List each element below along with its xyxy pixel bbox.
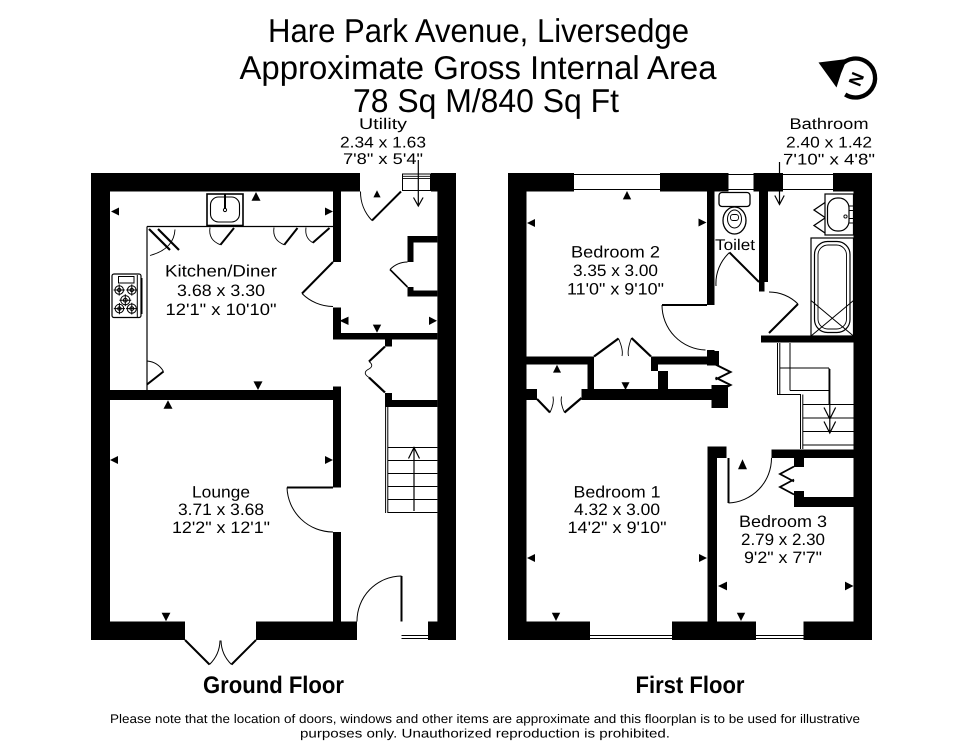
svg-text:Kitchen/Diner: Kitchen/Diner (165, 263, 278, 281)
svg-text:Ground Floor: Ground Floor (203, 672, 344, 699)
svg-text:3.68 x 3.30: 3.68 x 3.30 (177, 282, 265, 300)
svg-text:7'8" x 5'4": 7'8" x 5'4" (343, 151, 423, 168)
svg-text:2.40 x 1.42: 2.40 x 1.42 (786, 135, 872, 152)
svg-text:Bathroom: Bathroom (790, 116, 869, 133)
svg-text:7'10" x 4'8": 7'10" x 4'8" (783, 152, 875, 169)
svg-text:2.34 x 1.63: 2.34 x 1.63 (340, 135, 426, 152)
svg-text:Bedroom 3: Bedroom 3 (739, 513, 827, 531)
svg-text:Please note that the location: Please note that the location of doors, … (110, 712, 860, 726)
svg-text:Utility: Utility (359, 116, 407, 133)
svg-text:First Floor: First Floor (636, 672, 745, 699)
svg-text:12'2" x 12'1": 12'2" x 12'1" (172, 519, 270, 537)
svg-text:14'2" x 9'10": 14'2" x 9'10" (568, 519, 667, 537)
svg-text:11'0" x 9'10": 11'0" x 9'10" (567, 281, 664, 299)
svg-text:purposes only. Unauthorized re: purposes only. Unauthorized reproduction… (300, 727, 670, 741)
svg-text:3.71 x 3.68: 3.71 x 3.68 (178, 501, 264, 519)
svg-text:9'2" x 7'7": 9'2" x 7'7" (744, 549, 822, 567)
svg-text:Lounge: Lounge (192, 484, 250, 502)
svg-text:Bedroom 2: Bedroom 2 (571, 244, 660, 262)
svg-text:Bedroom 1: Bedroom 1 (574, 484, 661, 502)
svg-text:12'1" x 10'10": 12'1" x 10'10" (166, 301, 277, 319)
svg-text:2.79 x 2.30: 2.79 x 2.30 (741, 531, 825, 549)
svg-text:Hare Park Avenue, Liversedge: Hare Park Avenue, Liversedge (268, 12, 689, 49)
svg-text:3.35 x 3.00: 3.35 x 3.00 (573, 262, 658, 280)
svg-text:Toilet: Toilet (715, 237, 756, 254)
svg-text:Approximate Gross Internal Are: Approximate Gross Internal Area (240, 49, 718, 86)
svg-text:4.32 x 3.00: 4.32 x 3.00 (574, 501, 660, 519)
svg-text:78 Sq M/840 Sq Ft: 78 Sq M/840 Sq Ft (353, 82, 619, 119)
